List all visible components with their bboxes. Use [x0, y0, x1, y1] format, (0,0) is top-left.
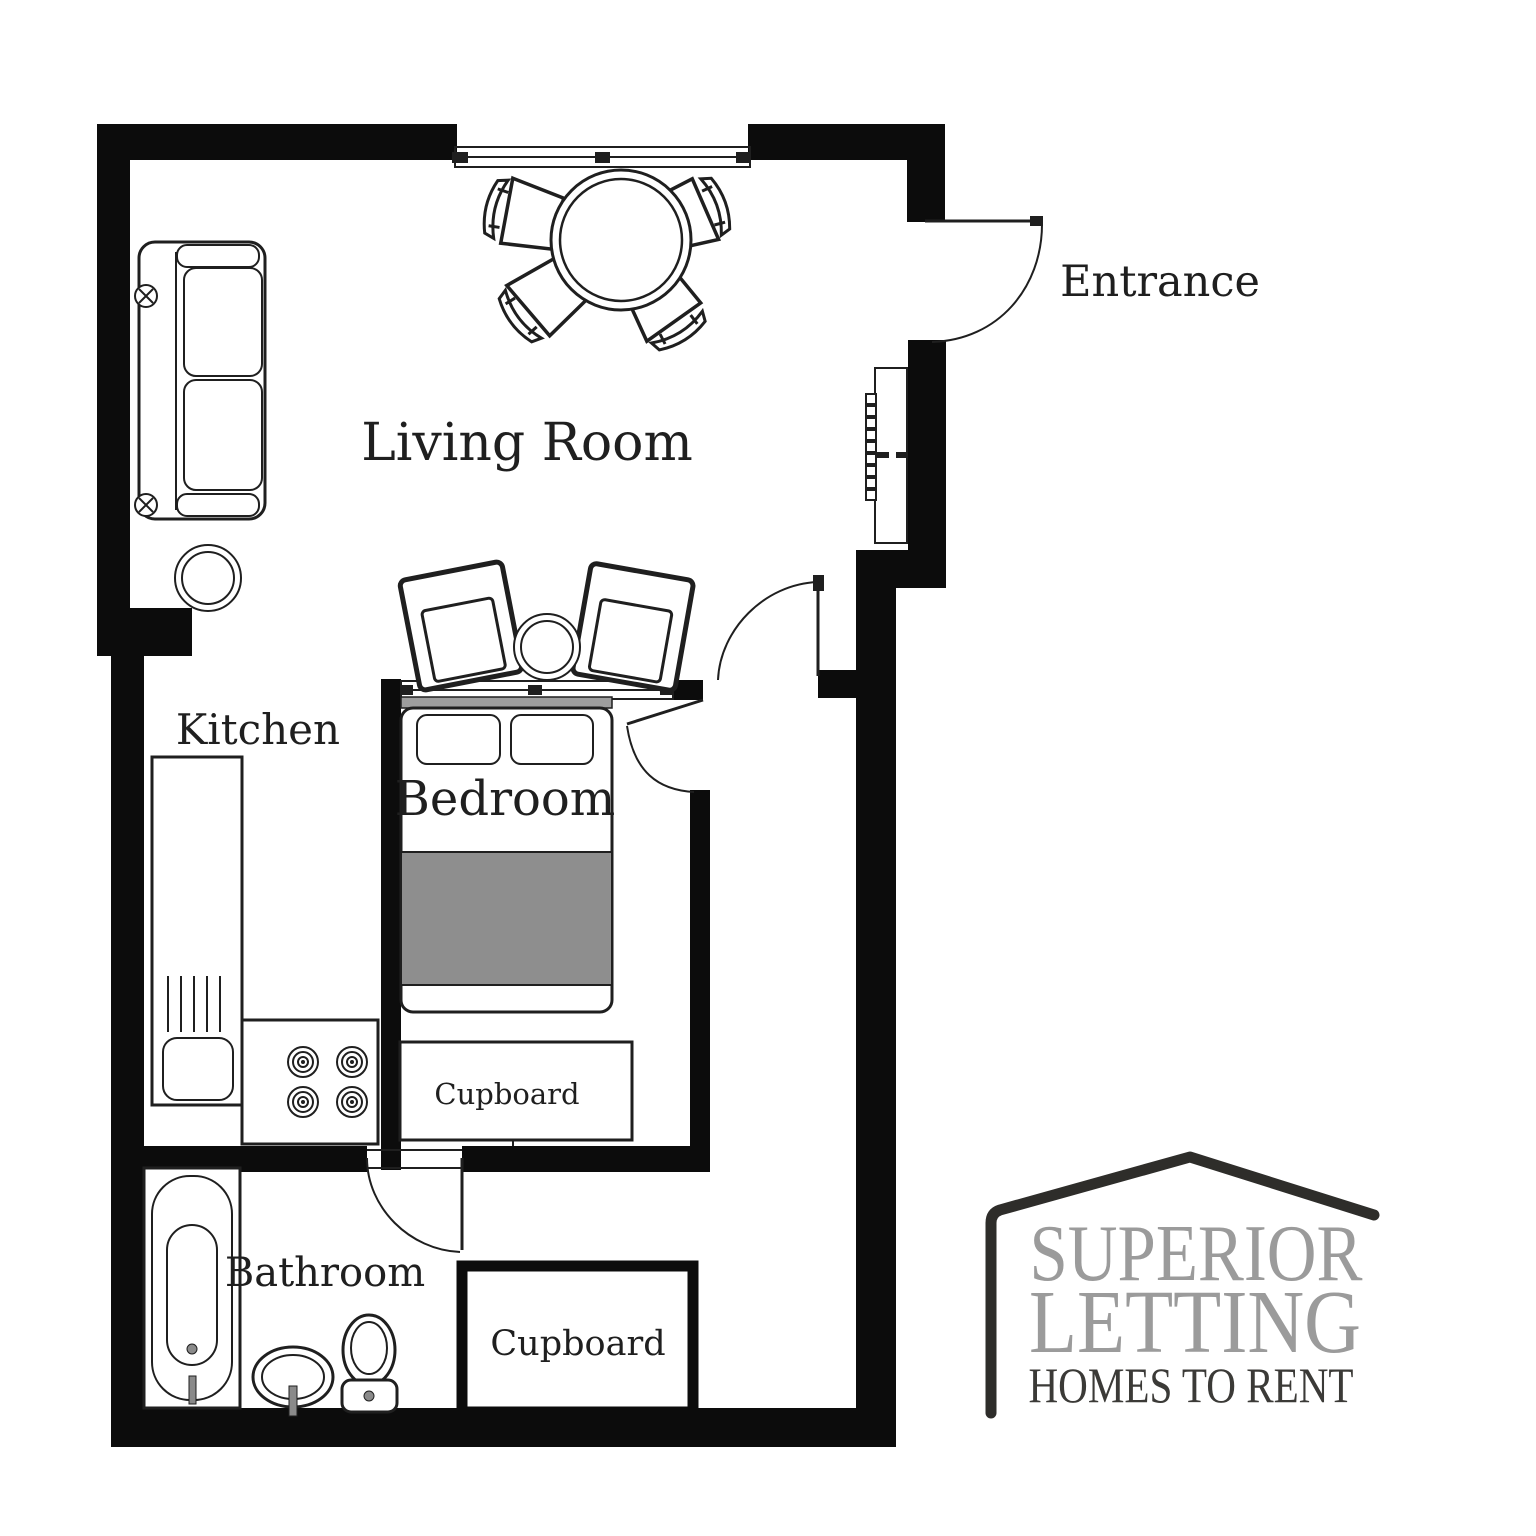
side-table [175, 545, 241, 611]
wall-bedroom-east [690, 790, 710, 1172]
wall-hall-door-stub [818, 670, 856, 698]
hall-radiator [866, 368, 908, 543]
headboard [401, 697, 612, 708]
living-room-label: Living Room [361, 413, 693, 473]
pillow [511, 715, 593, 764]
bedroom-door [627, 700, 703, 792]
bedroom-label: Bedroom [395, 771, 616, 827]
dining-table-inner [560, 179, 682, 301]
floor-plan-page: Living Room Kitchen Bedroom Bathroom Ent… [0, 0, 1536, 1536]
wall-hall-east [856, 586, 896, 1447]
agency-logo: SUPERIOR LETTING HOMES TO RENT [991, 1157, 1374, 1413]
wall-right-step [856, 550, 946, 588]
radiator-fins [866, 394, 876, 500]
socket-symbol-icon [135, 494, 157, 516]
entrance-door [925, 216, 1043, 342]
wall-right-upper-stub [907, 124, 945, 222]
coffee-table-inner [521, 621, 573, 673]
wall-right-mid [908, 340, 946, 554]
double-bed [401, 697, 612, 1012]
wall-top-left [97, 124, 457, 160]
pillow [417, 715, 500, 764]
logo-tagline: HOMES TO RENT [1029, 1357, 1354, 1413]
hob-counter [242, 1020, 378, 1144]
sink-basin [163, 1038, 233, 1100]
wall-left-upper [97, 124, 130, 622]
armchair [572, 563, 694, 691]
sofa [135, 242, 265, 519]
socket-symbol-icon [135, 285, 157, 307]
kitchen-label: Kitchen [176, 705, 340, 754]
bedroom-cupboard-label: Cupboard [434, 1077, 579, 1111]
wall-bedroom-west [381, 679, 401, 1170]
dining-set [478, 170, 736, 357]
hall-door [718, 575, 824, 680]
basin [253, 1347, 333, 1416]
bathroom-label: Bathroom [225, 1250, 425, 1296]
kitchen-counter [152, 757, 378, 1144]
floor-plan: Living Room Kitchen Bedroom Bathroom Ent… [0, 0, 1536, 1536]
armchair-pair [399, 561, 694, 691]
wall-left-lower [111, 650, 144, 1440]
toilet [342, 1315, 397, 1412]
living-room-window [452, 147, 750, 167]
wall-below-cupboard [462, 1146, 705, 1172]
room-labels: Living Room Kitchen Bedroom Bathroom Ent… [176, 257, 1260, 1364]
entrance-label: Entrance [1060, 257, 1260, 307]
duvet [401, 852, 612, 985]
armchair [399, 561, 522, 691]
wall-kitchen-nib [97, 608, 192, 656]
bathroom-cupboard-label: Cupboard [490, 1324, 665, 1364]
